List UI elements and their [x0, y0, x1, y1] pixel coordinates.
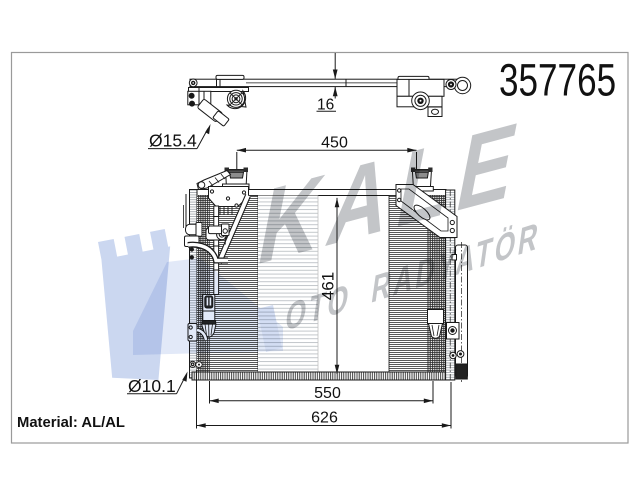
svg-text:Ø15.4: Ø15.4: [149, 131, 197, 151]
svg-text:550: 550: [314, 385, 341, 402]
svg-text:Material: AL/AL: Material: AL/AL: [17, 415, 125, 431]
svg-text:626: 626: [311, 409, 338, 426]
svg-text:357765: 357765: [499, 54, 616, 105]
